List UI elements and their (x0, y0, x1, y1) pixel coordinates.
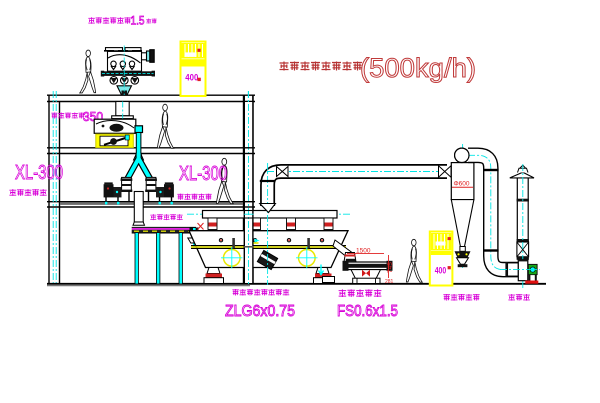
svg-text:XL-300: XL-300 (179, 163, 227, 185)
svg-text:(500kg/h): (500kg/h) (360, 53, 476, 83)
svg-text:XL-300: XL-300 (15, 162, 63, 184)
svg-text:400: 400 (435, 265, 447, 275)
svg-text:1.5: 1.5 (131, 14, 145, 28)
svg-text:FS0.6x1.5: FS0.6x1.5 (337, 303, 398, 320)
svg-text:400: 400 (185, 72, 198, 82)
svg-text:ZLG6x0.75: ZLG6x0.75 (225, 303, 295, 320)
svg-text:Φ600: Φ600 (454, 181, 470, 188)
svg-text:1500: 1500 (356, 248, 371, 255)
svg-text:745: 745 (387, 262, 394, 273)
svg-text:281: 281 (385, 279, 394, 285)
